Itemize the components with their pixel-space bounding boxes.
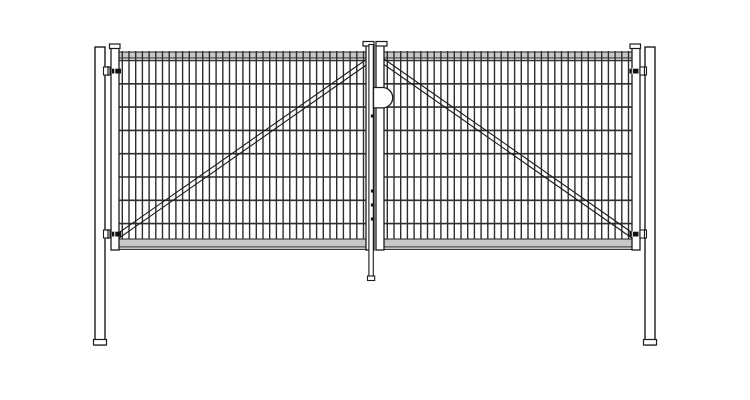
left-leaf-mesh <box>119 51 366 239</box>
latch-box <box>374 88 393 108</box>
left-outer-stile-cap <box>110 44 121 49</box>
right-post <box>644 47 657 345</box>
stile-caps <box>110 42 641 49</box>
left-leaf <box>111 45 374 250</box>
right-center-stile-cap <box>376 42 387 47</box>
right-leaf <box>376 45 640 250</box>
right-leaf-brace <box>384 59 634 240</box>
drawing-svg <box>0 0 750 400</box>
left-post <box>94 47 107 345</box>
right-leaf-mesh <box>384 51 632 239</box>
gate-technical-drawing <box>0 0 750 400</box>
drop-rod-guide <box>371 218 374 221</box>
drop-rod <box>368 45 375 281</box>
right-outer-stile-cap <box>630 44 641 49</box>
drop-rod-guide <box>371 190 374 193</box>
drop-rod-guide <box>371 115 374 118</box>
drop-rod-guide <box>371 204 374 207</box>
